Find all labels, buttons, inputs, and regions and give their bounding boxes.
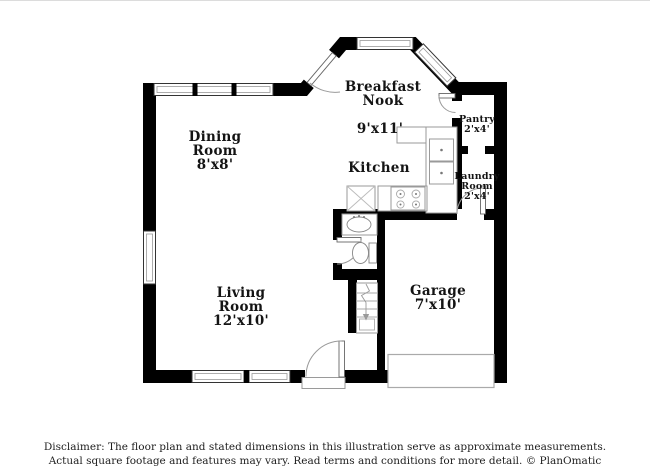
label-pantry-dim: 2'x4' <box>464 124 490 135</box>
label-garage-dim: 7'x10' <box>415 297 461 313</box>
label-dining-room-dim: 8'x8' <box>197 157 234 173</box>
label-laundry-room-dim: 2'x4' <box>464 191 490 202</box>
living-side-window <box>144 231 156 284</box>
pantry-door <box>439 94 456 113</box>
entry-door <box>302 341 345 389</box>
garage-door <box>388 355 494 388</box>
staircase-icon <box>357 283 378 333</box>
living-windows <box>192 370 290 383</box>
door-leaf <box>339 341 345 377</box>
disclaimer-line1: Disclaimer: The floor plan and stated di… <box>44 441 606 453</box>
label-breakfast-nook-dim: 9'x11' <box>357 121 403 137</box>
window-mullion <box>244 370 249 383</box>
label-kitchen: Kitchen <box>348 160 410 176</box>
kitchen-sink-icon <box>430 139 454 184</box>
disclaimer-line2: Actual square footage and features may v… <box>48 455 602 467</box>
entry-stoop <box>302 378 345 389</box>
toilet-icon <box>353 243 377 264</box>
image-border-top <box>0 0 650 1</box>
label-breakfast-nook: Nook <box>363 93 404 109</box>
door-leaf <box>439 94 455 99</box>
bathroom-sink-icon <box>342 214 377 235</box>
window-mullion <box>193 83 198 96</box>
stove-icon <box>391 187 425 210</box>
floor-plan: Breakfast Nook 9'x11' Kitchen Dining Roo… <box>0 0 650 473</box>
door-leaf <box>337 238 361 243</box>
window-mullion <box>232 83 237 96</box>
label-living-room-dim: 12'x10' <box>213 313 269 329</box>
refrigerator-icon <box>347 186 375 211</box>
disclaimer: Disclaimer: The floor plan and stated di… <box>44 441 606 467</box>
dining-windows <box>154 83 273 96</box>
